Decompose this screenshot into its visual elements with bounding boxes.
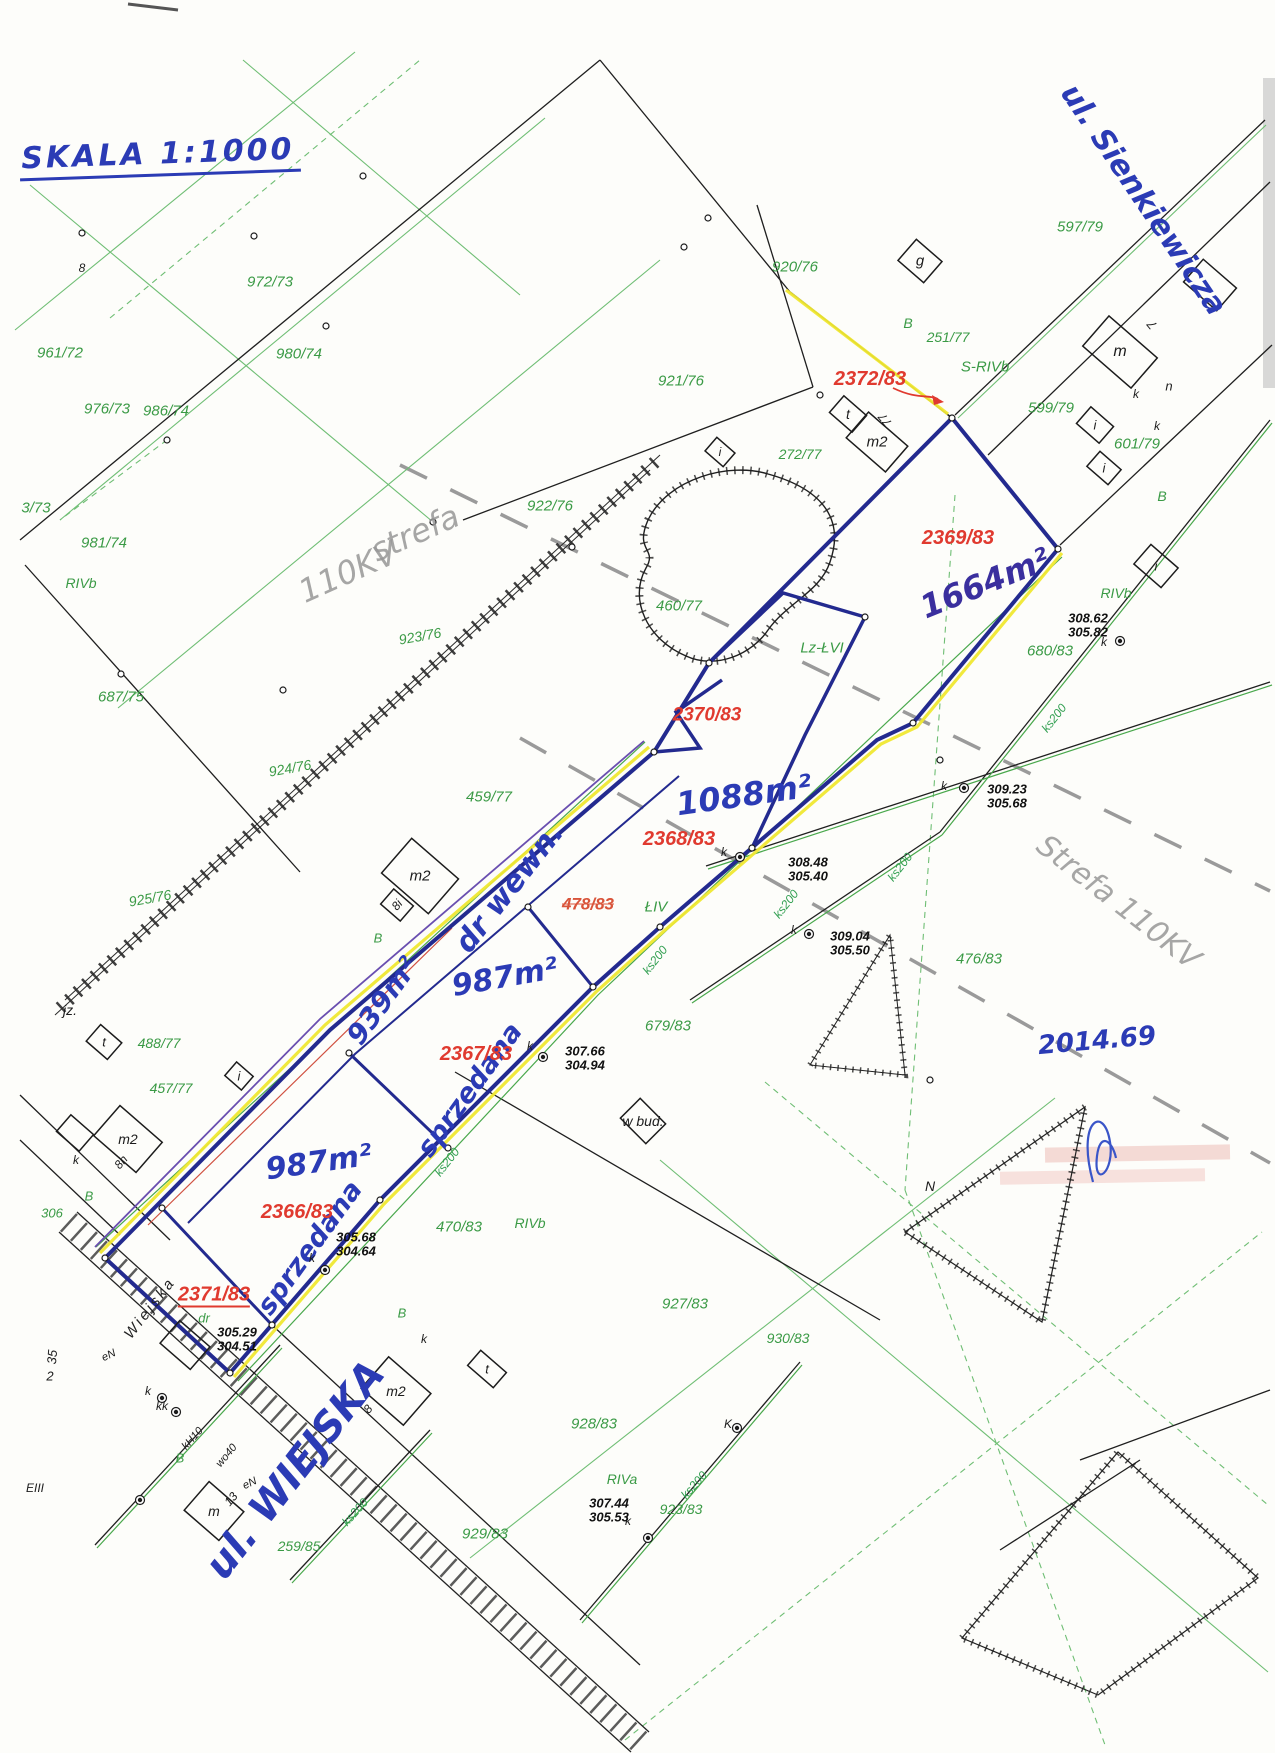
parcel-number: 923/83 xyxy=(660,1502,703,1516)
handwritten-area-note: 2014.69 xyxy=(1037,1023,1157,1059)
parcel-number: 929/83 xyxy=(462,1527,508,1542)
parcel-number-1983: 2368/83 xyxy=(643,829,715,849)
utility-line-label: ks200 xyxy=(771,888,800,921)
parcel-number-crossed: 478/83 xyxy=(562,896,614,913)
map-symbol-label: 35 xyxy=(45,1349,59,1365)
parcel-number: 306 xyxy=(41,1207,63,1220)
map-symbol-label: w bud. xyxy=(622,1114,663,1128)
map-symbol-label: m xyxy=(1113,344,1126,360)
map-symbol-label: i xyxy=(1155,560,1158,573)
parcel-number: B xyxy=(85,1190,94,1203)
parcel-number: 272/77 xyxy=(779,447,822,461)
parcel-number: Lz-ŁVI xyxy=(800,641,843,656)
parcel-number: 972/73 xyxy=(247,275,293,290)
map-symbol-label: K xyxy=(724,1418,732,1430)
map-symbol-label: jz. xyxy=(63,1003,77,1017)
utility-line-label: ks200 xyxy=(679,1469,709,1501)
map-symbol-label: k xyxy=(145,1385,151,1397)
street-name-label: Wiejska xyxy=(121,1274,178,1341)
parcel-number: dr xyxy=(198,1312,210,1325)
handwritten-area-note: 939m² xyxy=(342,952,423,1049)
map-symbol-label: k xyxy=(421,1333,427,1345)
parcel-number: 597/79 xyxy=(1057,220,1103,235)
map-symbol-label: k xyxy=(73,1154,79,1166)
map-symbol-label: i xyxy=(238,1070,241,1083)
elevation-label: 304.51 xyxy=(217,1340,257,1353)
parcel-number: 928/83 xyxy=(571,1417,617,1432)
parcel-number: 980/74 xyxy=(276,347,322,362)
map-symbol-label: 8i xyxy=(389,898,404,913)
elevation-label: 305.82 xyxy=(1068,626,1108,639)
elevation-label: 304.94 xyxy=(565,1059,605,1072)
map-symbol-label: m2 xyxy=(410,869,431,884)
map-symbol-label: n xyxy=(1165,380,1172,393)
parcel-number: 459/77 xyxy=(466,790,512,805)
elevation-label: 308.62 xyxy=(1068,612,1108,625)
map-symbol-label: m2 xyxy=(386,1384,405,1398)
parcel-number: 976/73 xyxy=(84,402,130,417)
parcel-number: 981/74 xyxy=(81,536,127,551)
parcel-number-1983: 2369/83 xyxy=(922,528,994,548)
utility-line-label: ks200 xyxy=(885,851,914,884)
parcel-number: RIVb xyxy=(65,576,96,590)
parcel-number: RIVb xyxy=(1100,586,1131,600)
handwritten-area-note: dr wewn. xyxy=(450,818,569,959)
parcel-number: 476/83 xyxy=(956,952,1002,967)
handwritten-area-note: ul. Sienkiewicza xyxy=(1055,79,1231,321)
elevation-label: 305.68 xyxy=(987,797,1027,810)
parcel-number: B xyxy=(374,932,383,945)
elevation-label: 305.53 xyxy=(589,1511,629,1524)
elevation-label: 305.68 xyxy=(336,1231,376,1244)
parcel-number: RIVb xyxy=(514,1216,545,1230)
map-symbol-label: 2 xyxy=(46,1370,53,1383)
parcel-number-1983: 2370/83 xyxy=(673,706,742,725)
map-symbol-label: kH10 xyxy=(180,1426,205,1452)
pencil-zone-note: 110KV xyxy=(294,536,402,608)
map-symbol-label: 7 xyxy=(1145,318,1160,332)
elevation-label: 309.04 xyxy=(830,930,870,943)
scanned-map-page: SKALA 1:1000ul. Sienkiewicza2014.691664m… xyxy=(0,0,1275,1753)
parcel-number-1983: 2372/83 xyxy=(834,369,906,389)
map-labels-layer: SKALA 1:1000ul. Sienkiewicza2014.691664m… xyxy=(0,0,1275,1753)
map-symbol-label: t xyxy=(485,1363,489,1376)
handwritten-area-note: sprzedana xyxy=(413,1018,528,1161)
map-symbol-label: k xyxy=(721,846,727,858)
map-symbol-label: k xyxy=(941,780,947,792)
parcel-number: 986/74 xyxy=(143,404,189,419)
map-symbol-label: 8 xyxy=(79,262,86,274)
parcel-number: B xyxy=(1157,489,1166,503)
parcel-number: 922/76 xyxy=(527,499,573,514)
map-symbol-label: 77 xyxy=(876,411,894,429)
parcel-number: 924/76 xyxy=(268,757,313,778)
handwritten-area-note: 1088m² xyxy=(674,770,814,821)
map-symbol-label: EIII xyxy=(26,1482,44,1494)
map-symbol-label: t xyxy=(846,407,850,421)
elevation-label: 309.23 xyxy=(987,783,1027,796)
map-symbol-label: kk xyxy=(156,1400,168,1412)
parcel-number: RIVa xyxy=(607,1472,638,1486)
parcel-number: ŁIV xyxy=(645,900,668,915)
map-symbol-label: i xyxy=(719,446,722,458)
parcel-number: 930/83 xyxy=(767,1331,810,1345)
handwritten-area-note: 1664m² xyxy=(916,543,1054,624)
utility-line-label: ks200 xyxy=(640,944,669,977)
parcel-number: B xyxy=(176,1452,185,1465)
map-symbol-label: k xyxy=(309,1252,315,1264)
parcel-number: 927/83 xyxy=(662,1297,708,1312)
parcel-number: 687/75 xyxy=(98,690,144,705)
map-symbol-label: t xyxy=(102,1036,106,1049)
parcel-number: 921/76 xyxy=(658,374,704,389)
elevation-label: 307.44 xyxy=(589,1497,629,1510)
map-symbol-label: 8h xyxy=(112,1153,130,1171)
utility-line-label: ks200 xyxy=(340,1496,370,1528)
map-symbol-label: m2 xyxy=(867,435,888,450)
map-symbol-label: k xyxy=(1154,420,1160,432)
elevation-label: 308.48 xyxy=(788,856,828,869)
parcel-number: 601/79 xyxy=(1114,437,1160,452)
pencil-zone-note: Strefa 110KV xyxy=(1031,830,1205,975)
parcel-number: S-RIVb xyxy=(961,360,1009,375)
elevation-label: 305.29 xyxy=(217,1326,257,1339)
map-symbol-label: k xyxy=(527,1040,533,1052)
parcel-number: B xyxy=(398,1307,407,1320)
parcel-number-1983: 2366/83 xyxy=(261,1202,333,1222)
parcel-number: 599/79 xyxy=(1028,401,1074,416)
map-symbol-label: eN xyxy=(100,1348,117,1364)
elevation-label: 305.50 xyxy=(830,944,870,957)
scale-label: SKALA 1:1000 xyxy=(19,135,301,182)
map-symbol-label: k xyxy=(1133,388,1139,400)
parcel-number: 251/77 xyxy=(927,330,970,344)
map-symbol-label: g xyxy=(916,254,924,269)
parcel-number: 920/76 xyxy=(772,260,818,275)
parcel-number: 925/76 xyxy=(128,887,173,908)
map-symbol-label: m xyxy=(208,1504,220,1518)
parcel-number: 457/77 xyxy=(150,1081,193,1095)
elevation-label: 304.64 xyxy=(336,1245,376,1258)
elevation-label: 307.66 xyxy=(565,1045,605,1058)
parcel-number: 680/83 xyxy=(1027,644,1073,659)
parcel-number: 259/85 xyxy=(278,1539,321,1553)
parcel-number: 488/77 xyxy=(138,1036,181,1050)
parcel-number: 460/77 xyxy=(656,599,702,614)
parcel-number: 961/72 xyxy=(37,346,83,361)
map-symbol-label: N xyxy=(925,1179,935,1193)
parcel-number: 3/73 xyxy=(21,501,50,516)
parcel-number: B xyxy=(903,316,912,330)
parcel-number-1983: 2371/83 xyxy=(178,1285,250,1308)
parcel-number: 470/83 xyxy=(436,1220,482,1235)
map-symbol-label: i xyxy=(1103,462,1106,475)
utility-line-label: ks200 xyxy=(1039,702,1068,735)
parcel-number: 679/83 xyxy=(645,1019,691,1034)
map-symbol-label: k xyxy=(791,924,797,936)
elevation-label: 305.40 xyxy=(788,870,828,883)
map-symbol-label: i xyxy=(1094,419,1097,432)
handwritten-area-note: 987m² xyxy=(264,1141,374,1186)
handwritten-area-note: 987m² xyxy=(450,954,561,1002)
parcel-number-1983: 2367/83 xyxy=(440,1044,512,1064)
parcel-number: 923/76 xyxy=(398,625,443,646)
map-symbol-label: wo40 xyxy=(214,1442,239,1469)
map-symbol-label: m2 xyxy=(118,1132,137,1146)
